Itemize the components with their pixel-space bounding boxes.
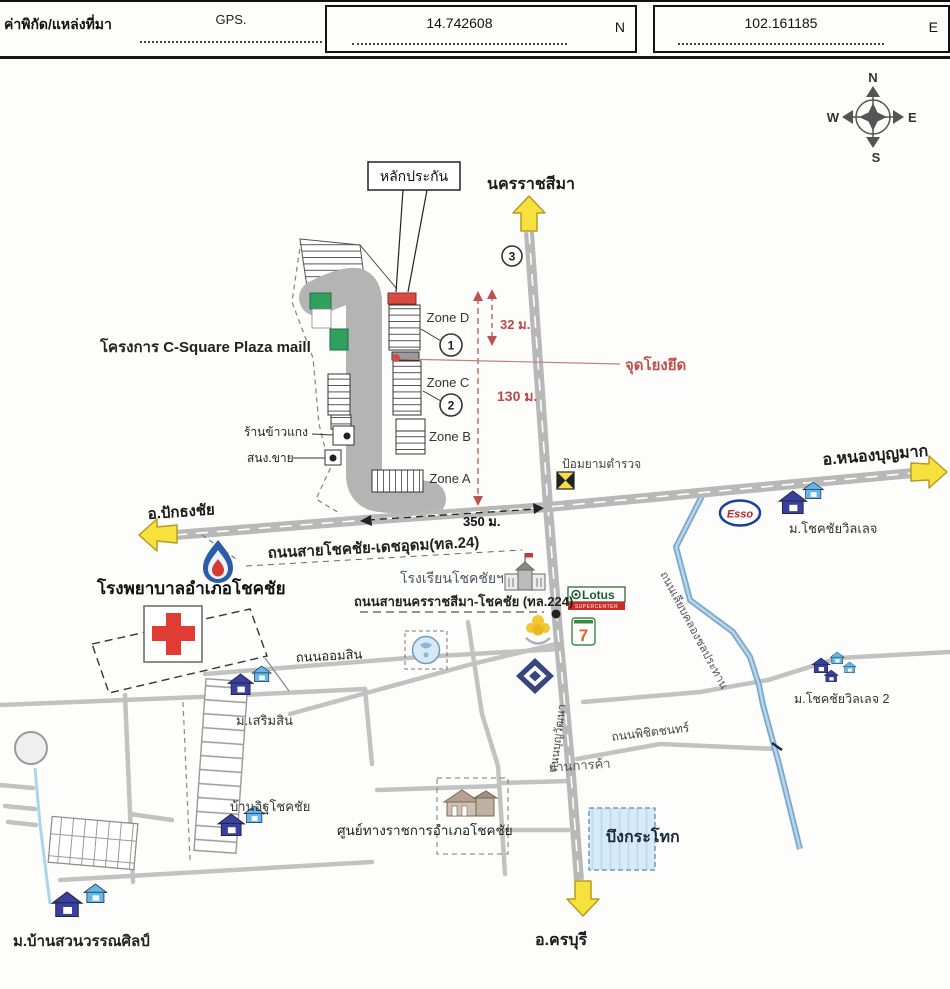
house-icon	[228, 674, 253, 695]
arrow-west	[139, 519, 177, 551]
house-icon	[830, 652, 844, 664]
market-stalls-grid	[48, 816, 138, 869]
longitude-value: 102.161185	[678, 15, 883, 45]
longitude-box: 102.161185 E	[653, 5, 950, 53]
house-icon	[779, 491, 807, 514]
label-dest-south: อ.ครบุรี	[535, 930, 588, 950]
marker-2: 2	[448, 399, 455, 413]
longitude-direction: E	[929, 19, 938, 35]
school-icon	[505, 553, 545, 590]
ptt-station-icon	[203, 540, 233, 583]
house-icon	[52, 892, 82, 917]
label-hospital: โรงพยาบาลอำเภอโชคชัย	[96, 578, 286, 598]
coordinates-header: ค่าพิกัด/แหล่งที่มา GPS. 14.742608 N 102…	[0, 2, 950, 56]
rice-shop-building	[333, 426, 354, 445]
road-east-village2	[583, 652, 950, 702]
lotus-supercenter: Lotus SUPERCENTER	[568, 587, 625, 610]
green-block-2	[330, 329, 348, 350]
police-booth-icon	[557, 472, 574, 489]
hwy224-point-dot	[552, 610, 561, 619]
scanned-location-map: หลักประกัน 1 2 3 Esso	[0, 0, 950, 989]
arrow-north	[513, 196, 545, 231]
lotus-sub-text: SUPERCENTER	[575, 604, 618, 610]
label-wannasin: ม.บ้านสวนวรรณศิลป์	[13, 932, 150, 950]
compass-w: W	[827, 110, 840, 125]
latitude-box: 14.742608 N	[325, 5, 637, 53]
label-rice-shop: ร้านข้าวแกง	[244, 425, 308, 439]
label-anchor-point: จุดโยงยึด	[625, 355, 686, 375]
esso-logo-text: Esso	[727, 509, 754, 521]
seven-logo-text: 7	[579, 626, 588, 645]
label-zone-d: Zone D	[427, 310, 470, 325]
label-32m: 32 ม.	[500, 317, 530, 332]
house-icon	[843, 662, 856, 673]
label-hwy224: ถนนสายนครราชสีมา-โชคชัย (ทล.224)	[354, 593, 573, 609]
label-sales-office: สนง.ขาย	[247, 451, 294, 465]
bangkok-bank-icon	[516, 658, 554, 694]
shop-row-zone-d	[389, 305, 420, 350]
label-zone-b: Zone B	[429, 429, 471, 444]
road-network	[0, 622, 950, 882]
label-dest-north: นครราชสีมา	[487, 174, 575, 193]
anchor-point-dot	[392, 354, 400, 362]
shop-row-zone-c	[393, 361, 421, 415]
map-labels: นครราชสีมา อ.ครบุรี อ.หนองบุญมาก อ.ปักธง…	[13, 174, 929, 950]
compass-star	[859, 103, 887, 131]
plaza-area	[292, 239, 428, 514]
label-zone-a: Zone A	[429, 471, 471, 486]
label-police: ป้อมยามตำรวจ	[562, 457, 641, 471]
label-project: โครงการ C-Square Plaza maill	[99, 337, 311, 356]
esso-station: Esso	[720, 501, 760, 526]
latitude-direction: N	[615, 19, 625, 35]
marker-3: 3	[509, 250, 516, 264]
lotus-logo-text: Lotus	[582, 588, 615, 602]
house-icon	[84, 884, 107, 903]
label-gov-center: ศูนย์ทางราชการอำเภอโชคชัย	[337, 822, 513, 839]
collateral-tag-label: หลักประกัน	[380, 168, 449, 184]
bottom-left-block	[15, 679, 248, 870]
header-divider	[0, 56, 950, 59]
label-canal-road: ถนนเลียบคลองชลประทาน	[657, 569, 730, 691]
map-canvas: หลักประกัน 1 2 3 Esso	[0, 2, 950, 989]
label-dest-west: อ.ปักธงชัย	[147, 501, 215, 523]
label-school: โรงเรียนโชคชัยฯ	[400, 570, 504, 586]
label-130m: 130 ม.	[497, 388, 537, 404]
label-village2: ม.โชคชัยวิลเลจ 2	[794, 691, 889, 706]
collateral-callout: หลักประกัน	[368, 162, 460, 292]
green-block-1	[310, 293, 331, 309]
label-village1: ม.โชคชัยวิลเลจ	[789, 521, 877, 536]
label-350m: 350 ม.	[463, 514, 500, 529]
gps-source-label: GPS.	[140, 12, 322, 43]
compass-rose: N S W E	[827, 70, 917, 165]
district-office-seal	[405, 631, 447, 669]
latitude-value: 14.742608	[352, 15, 568, 45]
label-road-phichit: ถนนพิชิตชนทร์	[611, 720, 691, 743]
label-trade-area: ย่านการค้า	[548, 756, 611, 775]
shop-row-zone-b	[396, 431, 425, 454]
compass-e: E	[908, 110, 917, 125]
label-zone-c: Zone C	[427, 375, 470, 390]
header-title: ค่าพิกัด/แหล่งที่มา	[4, 14, 112, 36]
seven-eleven-icon: 7	[572, 618, 595, 645]
label-hwy24: ถนนสายโชคชัย-เดชอุดม(ทล.24)	[267, 532, 480, 563]
shop-row-zone-a	[372, 470, 423, 492]
compass-n: N	[868, 70, 877, 85]
collateral-unit	[388, 293, 416, 304]
label-lake: บึงกระโทก	[606, 826, 680, 846]
road-diagonal-2	[468, 622, 498, 766]
arrow-south	[567, 881, 599, 916]
pond	[15, 732, 47, 764]
krungsri-bank-icon	[526, 615, 550, 644]
label-brick-house: บ้านอิฐโชคชัย	[230, 799, 310, 815]
small-stream	[35, 768, 50, 904]
compass-s: S	[872, 150, 881, 165]
marker-1: 1	[448, 339, 455, 353]
label-sermsin: ม.เสริมสิน	[236, 713, 293, 728]
